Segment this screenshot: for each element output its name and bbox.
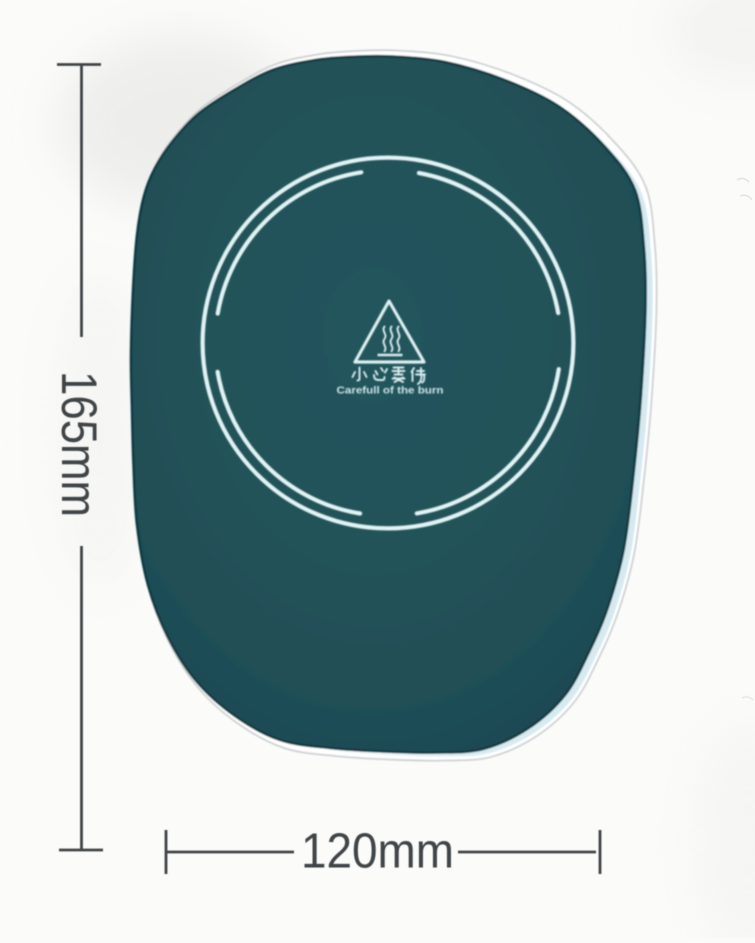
svg-text:165mm: 165mm: [51, 371, 107, 517]
svg-text:120mm: 120mm: [301, 825, 454, 879]
svg-text:Carefull of the burn: Carefull of the burn: [337, 385, 444, 397]
